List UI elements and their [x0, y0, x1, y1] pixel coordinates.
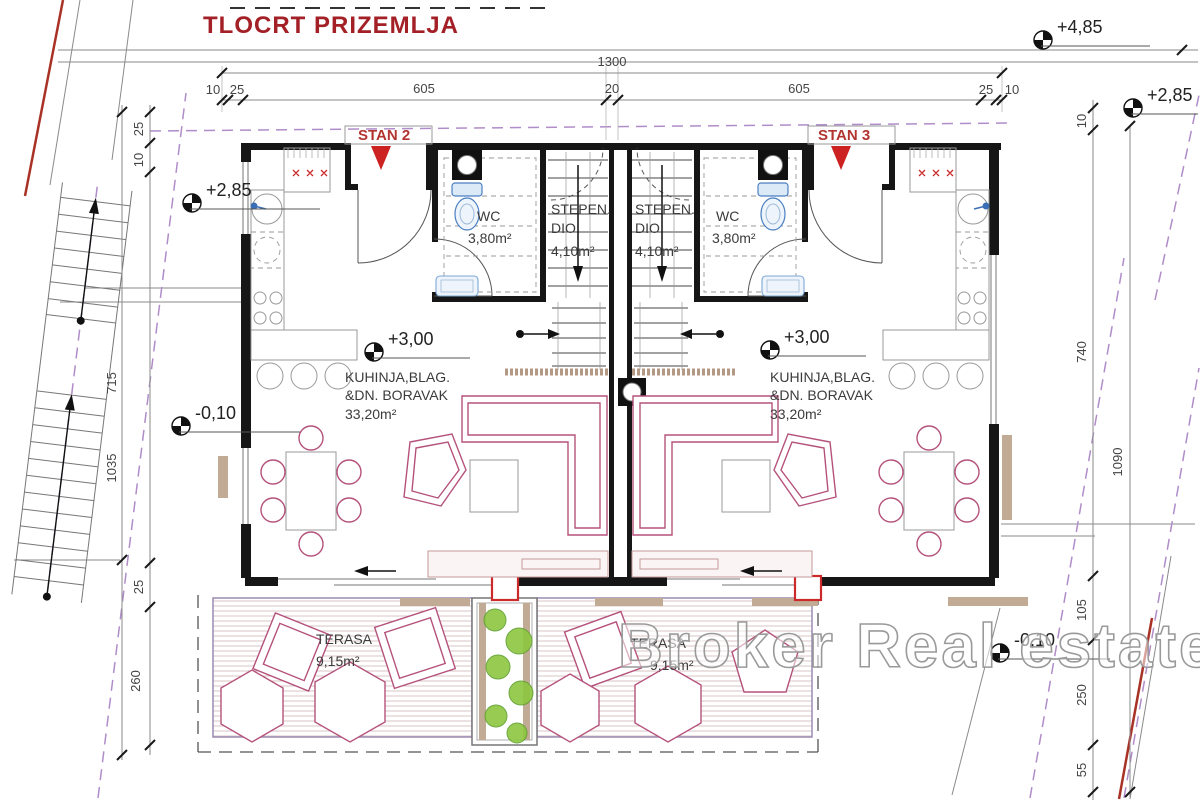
dim-left: 10 — [131, 153, 146, 167]
room-area: 33,20m² — [770, 406, 822, 422]
level-roof: +4,85 — [1034, 17, 1150, 49]
room-label-terrace: TERASA — [316, 631, 373, 647]
room-label-living: &DN. BORAVAK — [770, 387, 874, 403]
dim-seg: 605 — [788, 81, 810, 96]
dim-total: 1300 — [598, 54, 627, 69]
toilet-icon — [452, 183, 482, 196]
terrace-left — [213, 598, 472, 742]
stair-direction-arrow — [89, 197, 101, 214]
floor-plan-page: 1300 10 25 605 20 605 25 10 25 10 715 10… — [0, 0, 1200, 800]
dimension-chain-right: 10 740 1090 105 250 55 — [1074, 100, 1135, 800]
room-area: 3,80m² — [468, 230, 512, 246]
terrace-column-left — [492, 576, 518, 600]
terrace-column-right — [795, 576, 821, 600]
room-label-stair: DIO — [551, 220, 576, 236]
building-walls — [241, 126, 1001, 600]
page-title: TLOCRT PRIZEMLJA — [203, 12, 459, 39]
room-area: 4,10m² — [635, 243, 679, 259]
room-area: 33,20m² — [345, 406, 397, 422]
dim-right: 740 — [1074, 341, 1089, 363]
dim-seg: 20 — [605, 81, 619, 96]
room-area: 3,80m² — [712, 230, 756, 246]
dim-right: 55 — [1074, 763, 1089, 777]
dim-seg: 10 — [206, 82, 220, 97]
sink-icon — [762, 276, 804, 296]
dim-seg: 10 — [1005, 82, 1019, 97]
level-value: +4,85 — [1057, 17, 1103, 37]
dim-left: 715 — [104, 372, 119, 394]
watermark: Broker Real estate — [618, 612, 1200, 681]
room-label-living: KUHINJA,BLAG. — [345, 369, 450, 385]
apartment-label-stan3: STAN 3 — [818, 127, 870, 144]
stair-direction-arrow — [65, 394, 77, 411]
level-upper-right: +2,85 — [1124, 85, 1198, 117]
dim-right: 250 — [1074, 684, 1089, 706]
room-label-living: KUHINJA,BLAG. — [770, 369, 875, 385]
terrace-planter — [472, 598, 537, 745]
dim-right: 10 — [1074, 114, 1089, 128]
dim-right: 1090 — [1110, 448, 1125, 477]
room-area: 9,15m² — [316, 653, 360, 669]
room-area: 4,10m² — [551, 243, 595, 259]
level-value: +2,85 — [1147, 85, 1193, 105]
dim-left: 260 — [128, 670, 143, 692]
level-value: +3,00 — [388, 329, 434, 349]
room-label-stair: STEPEN. — [635, 201, 695, 217]
tv-cabinet — [428, 551, 608, 577]
room-label-stair: DIO — [635, 220, 660, 236]
apartment-label-stan2: STAN 2 — [358, 127, 410, 144]
tv-cabinet — [632, 551, 812, 577]
level-value: +3,00 — [784, 327, 830, 347]
room-label-stair: STEPEN. — [551, 201, 611, 217]
dimension-chain-top: 1300 10 25 605 20 605 25 10 — [206, 54, 1019, 140]
dim-seg: 25 — [230, 82, 244, 97]
dim-seg: 605 — [413, 81, 435, 96]
room-label-wc: WC — [477, 208, 500, 224]
dim-left: 25 — [131, 122, 146, 136]
dim-left: 25 — [131, 580, 146, 594]
toilet-icon — [758, 183, 788, 196]
room-label-living: &DN. BORAVAK — [345, 387, 449, 403]
sink-icon — [436, 276, 478, 296]
floor-plan-drawing: 1300 10 25 605 20 605 25 10 25 10 715 10… — [0, 0, 1200, 800]
dim-seg: 25 — [979, 82, 993, 97]
level-value: -0,10 — [195, 403, 236, 423]
room-label-wc: WC — [716, 208, 739, 224]
dim-left: 1035 — [104, 454, 119, 483]
level-value: +2,85 — [206, 180, 252, 200]
